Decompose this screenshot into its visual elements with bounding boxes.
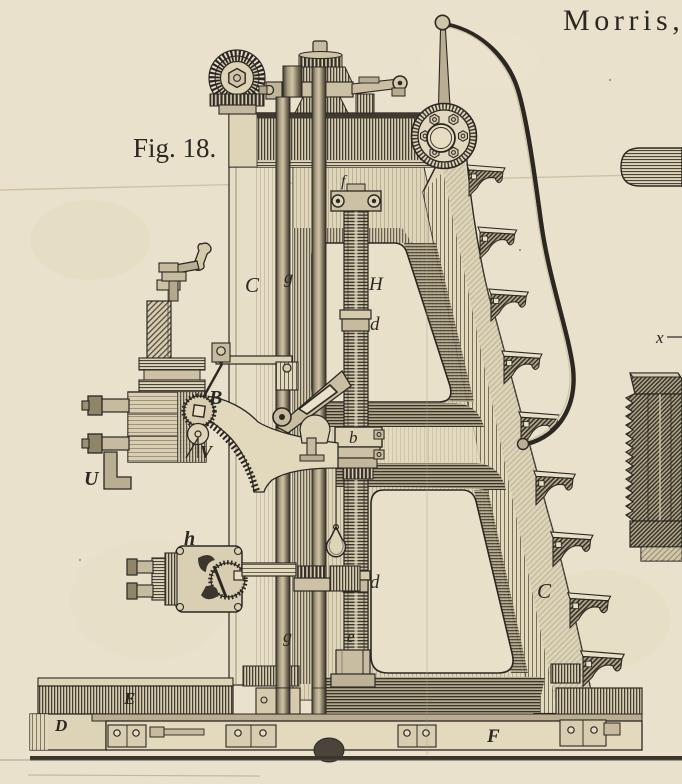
svg-text:H: H — [368, 274, 384, 295]
svg-text:g: g — [284, 267, 293, 287]
svg-text:U: U — [84, 468, 100, 490]
svg-text:E: E — [123, 689, 135, 708]
svg-text:d: d — [370, 572, 380, 593]
svg-text:x: x — [655, 328, 664, 347]
svg-text:C: C — [537, 579, 552, 603]
svg-text:V: V — [200, 442, 214, 462]
svg-text:g: g — [283, 626, 292, 646]
svg-text:Morris,: Morris, — [563, 4, 682, 37]
svg-text:b: b — [349, 428, 358, 447]
svg-text:C: C — [245, 273, 260, 297]
svg-text:e: e — [347, 627, 355, 646]
svg-text:d: d — [370, 314, 380, 335]
svg-text:D: D — [54, 716, 67, 735]
svg-text:F: F — [486, 726, 500, 747]
svg-text:Fig. 18.: Fig. 18. — [133, 133, 216, 163]
